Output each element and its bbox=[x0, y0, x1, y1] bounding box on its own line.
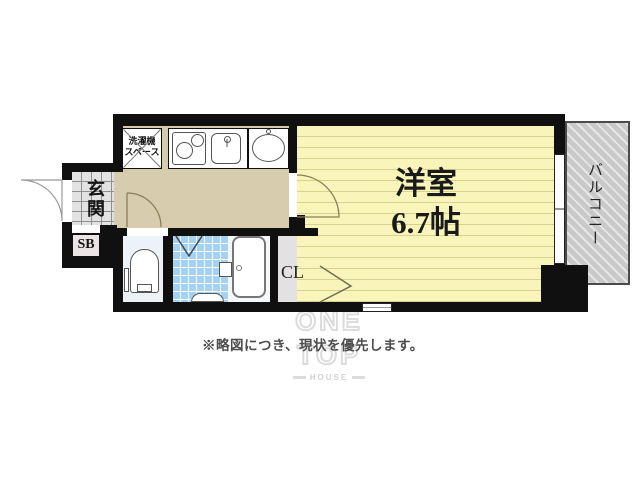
main-room-size: 6.7帖 bbox=[297, 203, 555, 242]
logo-dash-right bbox=[352, 376, 365, 379]
bath-shelf-icon bbox=[219, 262, 232, 277]
south-window-divider bbox=[363, 307, 391, 308]
balcony-label: バルコニー bbox=[584, 162, 605, 267]
entrance-door-opening bbox=[62, 180, 72, 222]
entrance-label: 玄関 bbox=[82, 179, 108, 225]
floor-plan: ONE TOP HOUSE bbox=[0, 0, 640, 480]
wall-bottom bbox=[113, 302, 588, 312]
wall-corner-block bbox=[541, 265, 588, 311]
bath-counter-icon bbox=[191, 293, 224, 302]
toilet-tank-icon bbox=[137, 284, 152, 292]
wall-tub-closet bbox=[270, 232, 278, 302]
washbasin-faucet-icon bbox=[266, 129, 271, 134]
entrance-step bbox=[72, 225, 100, 233]
stove-burner-large-icon bbox=[176, 142, 193, 159]
balcony-window-divider bbox=[555, 208, 564, 210]
sink-faucet-icon bbox=[224, 136, 231, 143]
room-door-opening bbox=[289, 173, 297, 217]
logo-house-row: HOUSE bbox=[276, 373, 382, 382]
toilet-door-opening bbox=[127, 228, 168, 236]
bathtub-drain-icon bbox=[236, 265, 242, 271]
washbasin-icon bbox=[252, 134, 285, 162]
entrance-door-swing-arc bbox=[21, 180, 62, 221]
wall-left-lower bbox=[113, 228, 123, 312]
wall-top bbox=[113, 114, 565, 126]
main-room-name: 洋室 bbox=[297, 164, 555, 203]
logo-house: HOUSE bbox=[310, 373, 348, 382]
logo-one: ONE bbox=[276, 308, 382, 335]
toilet-paper-holder-icon bbox=[124, 268, 129, 292]
kitchen-hall-floor-lower bbox=[114, 172, 289, 230]
closet-label: CL bbox=[278, 262, 307, 283]
main-room-label: 洋室 6.7帖 bbox=[297, 164, 555, 242]
shoe-box-label: SB bbox=[72, 237, 100, 253]
wall-toilet-bath bbox=[163, 236, 173, 302]
wall-entrance-top bbox=[62, 163, 117, 172]
disclaimer-text: ※略図につき、現状を優先します。 bbox=[202, 334, 462, 354]
stove-burner-small-icon bbox=[191, 134, 204, 147]
washer-space-label: 洗濯機 スペース bbox=[122, 136, 162, 158]
logo-dash-left bbox=[293, 376, 306, 379]
